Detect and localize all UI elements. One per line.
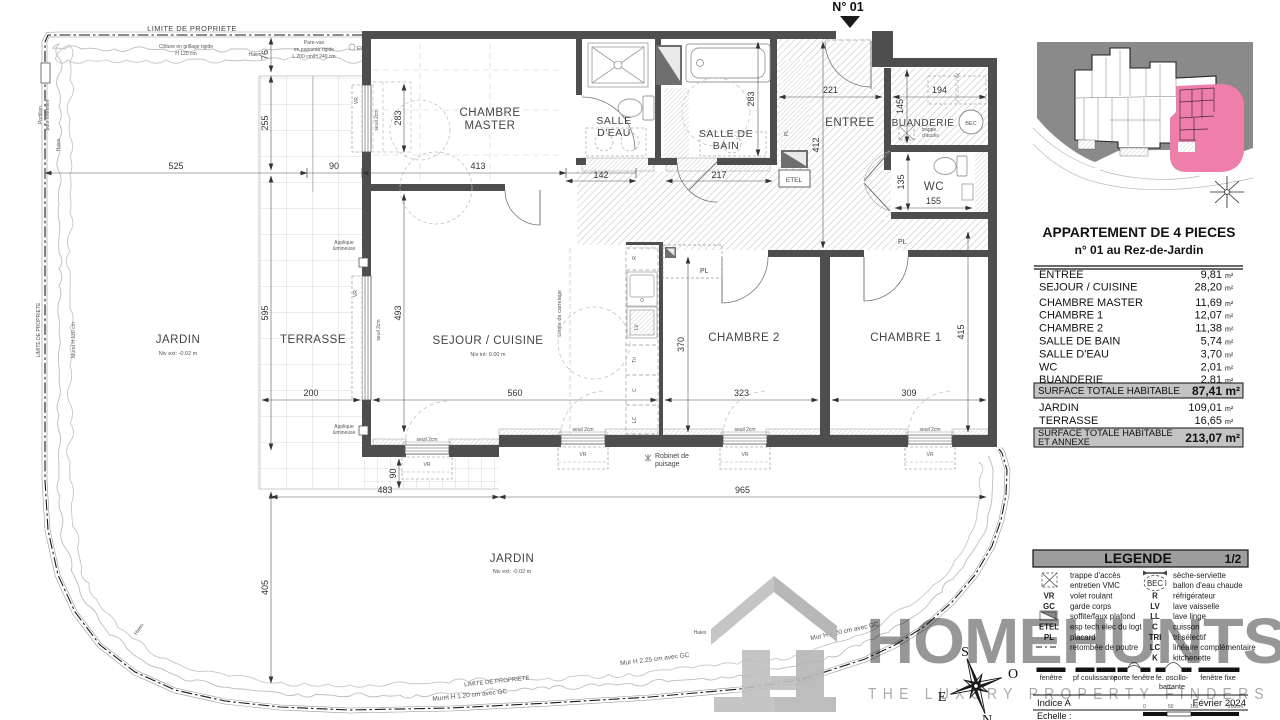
svg-text:VR: VR: [1044, 592, 1055, 601]
svg-text:SALLE D'EAU: SALLE D'EAU: [1039, 348, 1109, 360]
svg-text:595: 595: [260, 305, 270, 320]
svg-text:SURFACE TOTALE HABITABLE: SURFACE TOTALE HABITABLE: [1038, 386, 1180, 397]
svg-text:560: 560: [507, 388, 522, 398]
svg-text:BAIN: BAIN: [713, 140, 740, 152]
svg-text:135: 135: [896, 174, 906, 189]
svg-text:LEGENDE: LEGENDE: [1104, 550, 1172, 566]
svg-text:VR: VR: [354, 97, 360, 104]
svg-text:SEJOUR / CUISINE: SEJOUR / CUISINE: [1039, 282, 1137, 294]
svg-text:VR: VR: [927, 452, 934, 458]
svg-text:CHAMBRE 2: CHAMBRE 2: [708, 332, 780, 344]
svg-text:m²: m²: [1225, 419, 1234, 426]
svg-text:m²: m²: [1225, 314, 1234, 321]
svg-text:Haies: Haies: [694, 630, 707, 636]
svg-text:N° 01: N° 01: [832, 0, 863, 14]
svg-text:LV: LV: [634, 323, 640, 329]
svg-text:Clôture en grillage rigide: Clôture en grillage rigide: [159, 44, 213, 50]
svg-text:ENTREE: ENTREE: [825, 117, 875, 129]
svg-text:Haies: Haies: [249, 52, 262, 58]
svg-text:3,70: 3,70: [1201, 348, 1222, 360]
svg-text:WC: WC: [924, 181, 944, 193]
svg-text:12,07: 12,07: [1194, 310, 1222, 322]
svg-text:405: 405: [260, 580, 270, 595]
svg-text:ENTREE: ENTREE: [1039, 269, 1084, 281]
svg-text:JARDIN: JARDIN: [490, 553, 535, 565]
svg-text:323: 323: [734, 388, 749, 398]
svg-text:volet roulant: volet roulant: [1070, 592, 1113, 601]
svg-text:CHAMBRE: CHAMBRE: [459, 107, 520, 119]
svg-text:CHAMBRE MASTER: CHAMBRE MASTER: [1039, 297, 1143, 309]
svg-text:283: 283: [746, 91, 756, 106]
svg-text:ETEL: ETEL: [786, 177, 803, 184]
svg-text:87,41 m²: 87,41 m²: [1192, 384, 1240, 398]
svg-text:trappe d'accès: trappe d'accès: [1070, 571, 1121, 580]
svg-text:483: 483: [377, 485, 392, 495]
svg-text:200cm: 200cm: [1228, 704, 1243, 710]
svg-text:lumineuse: lumineuse: [333, 246, 356, 252]
svg-text:255: 255: [260, 115, 270, 130]
svg-text:JARDIN: JARDIN: [1039, 402, 1079, 414]
svg-text:Niv int: 0.00 m: Niv int: 0.00 m: [470, 352, 506, 358]
svg-text:TERRASSE: TERRASSE: [1039, 415, 1098, 427]
svg-text:APPARTEMENT DE 4 PIECES: APPARTEMENT DE 4 PIECES: [1043, 225, 1236, 240]
svg-text:413: 413: [470, 161, 485, 171]
svg-text:0: 0: [1143, 704, 1146, 710]
svg-text:WC: WC: [1039, 361, 1057, 373]
svg-text:N: N: [982, 713, 992, 720]
svg-text:en panneau rigide: en panneau rigide: [294, 47, 334, 53]
svg-text:5,74: 5,74: [1201, 336, 1222, 348]
svg-text:213,07 m²: 213,07 m²: [1185, 431, 1240, 445]
svg-text:m²: m²: [1225, 365, 1234, 372]
svg-text:seuil 2cm: seuil 2cm: [376, 319, 382, 340]
svg-text:CHAMBRE 1: CHAMBRE 1: [870, 332, 942, 344]
svg-text:LIMITE DE PROPRIETE: LIMITE DE PROPRIETE: [147, 24, 237, 33]
svg-text:CHAMBRE 1: CHAMBRE 1: [1039, 310, 1103, 322]
svg-text:Limite de carrelage: Limite de carrelage: [557, 290, 563, 337]
svg-text:SALLE: SALLE: [596, 115, 631, 127]
svg-text:221: 221: [823, 85, 838, 95]
svg-text:200: 200: [303, 388, 318, 398]
svg-text:Portillon: Portillon: [38, 106, 44, 124]
svg-text:90: 90: [388, 468, 398, 478]
svg-text:JARDIN: JARDIN: [156, 334, 201, 346]
svg-text:m²: m²: [1225, 301, 1234, 308]
svg-text:194: 194: [932, 85, 947, 95]
svg-text:m²: m²: [1225, 273, 1234, 280]
svg-text:L 200 cm/H 240 cm: L 200 cm/H 240 cm: [292, 54, 335, 60]
svg-text:Echelle :: Echelle :: [1037, 711, 1072, 720]
svg-text:R: R: [1152, 592, 1158, 601]
svg-text:m²: m²: [1225, 286, 1234, 293]
svg-text:R: R: [632, 256, 638, 260]
svg-text:m²: m²: [1225, 340, 1234, 347]
svg-text:2,01: 2,01: [1201, 361, 1222, 373]
svg-text:415: 415: [956, 324, 966, 339]
svg-text:LIMITE DE PROPRIETE: LIMITE DE PROPRIETE: [36, 302, 42, 357]
svg-text:VR: VR: [424, 462, 431, 468]
svg-text:lumineuse: lumineuse: [333, 430, 356, 436]
svg-text:965: 965: [735, 485, 750, 495]
svg-text:VR: VR: [580, 452, 587, 458]
svg-text:145: 145: [895, 99, 905, 114]
svg-text:Robinet de: Robinet de: [655, 453, 689, 460]
svg-text:100: 100: [1190, 704, 1199, 710]
svg-text:50: 50: [1168, 704, 1174, 710]
svg-text:Pare-vue: Pare-vue: [304, 40, 325, 46]
svg-text:11,69: 11,69: [1195, 297, 1222, 309]
svg-text:EP: EP: [357, 46, 364, 52]
svg-text:n° 01 au Rez-de-Jardin: n° 01 au Rez-de-Jardin: [1075, 243, 1204, 257]
svg-text:pour entretien: pour entretien: [45, 99, 51, 130]
svg-text:BUANDERIE: BUANDERIE: [892, 118, 955, 129]
svg-text:PL: PL: [898, 239, 907, 246]
svg-text:S: S: [961, 645, 969, 660]
svg-text:Muret H 120 cm: Muret H 120 cm: [71, 322, 77, 358]
svg-text:1/2: 1/2: [1225, 552, 1242, 566]
svg-text:Niv ext: -0.02 m: Niv ext: -0.02 m: [159, 351, 198, 357]
svg-text:d'accès: d'accès: [922, 133, 939, 139]
svg-text:142: 142: [593, 170, 608, 180]
svg-text:11,38: 11,38: [1195, 323, 1222, 335]
svg-text:THE LUXURY PROPERTY FINDERS: THE LUXURY PROPERTY FINDERS: [868, 686, 1270, 703]
svg-text:76: 76: [260, 50, 270, 60]
svg-text:m²: m²: [1225, 406, 1234, 413]
svg-text:525: 525: [168, 161, 183, 171]
svg-text:MASTER: MASTER: [465, 120, 516, 132]
svg-text:109,01: 109,01: [1188, 402, 1222, 414]
svg-text:D'EAU: D'EAU: [597, 127, 631, 139]
svg-text:m²: m²: [1225, 352, 1234, 359]
svg-text:9,81: 9,81: [1201, 269, 1222, 281]
svg-text:155: 155: [926, 196, 941, 206]
svg-text:ballon d'eau chaude: ballon d'eau chaude: [1173, 581, 1243, 590]
svg-text:Haies: Haies: [56, 138, 62, 151]
svg-text:16,65: 16,65: [1194, 415, 1222, 427]
svg-text:493: 493: [393, 305, 403, 320]
svg-text:Niv ext: -0.02 m: Niv ext: -0.02 m: [493, 569, 532, 575]
svg-text:370: 370: [676, 337, 686, 352]
svg-text:H 120 cm: H 120 cm: [175, 51, 196, 57]
svg-text:CHAMBRE 2: CHAMBRE 2: [1039, 323, 1103, 335]
svg-text:BEC: BEC: [1147, 579, 1163, 588]
svg-text:VR: VR: [742, 452, 749, 458]
svg-text:Tri: Tri: [632, 357, 638, 363]
svg-text:O: O: [1008, 667, 1018, 682]
svg-text:réfrigérateur: réfrigérateur: [1173, 592, 1216, 601]
svg-text:VR: VR: [353, 290, 359, 297]
svg-text:C: C: [632, 388, 638, 392]
svg-text:ET ANNEXE: ET ANNEXE: [1038, 437, 1090, 447]
svg-text:SALLE DE BAIN: SALLE DE BAIN: [1039, 336, 1120, 348]
svg-text:283: 283: [393, 110, 403, 125]
svg-text:m²: m²: [1225, 327, 1234, 334]
svg-text:309: 309: [901, 388, 916, 398]
svg-text:217: 217: [711, 170, 726, 180]
svg-text:28,20: 28,20: [1194, 282, 1222, 294]
svg-text:E: E: [938, 690, 947, 705]
svg-text:TERRASSE: TERRASSE: [280, 334, 346, 346]
svg-text:SALLE DE: SALLE DE: [699, 128, 753, 140]
svg-text:BEC: BEC: [965, 121, 976, 127]
svg-text:HOMEHUNTS: HOMEHUNTS: [866, 605, 1280, 677]
svg-text:LC: LC: [632, 416, 638, 423]
svg-text:SEJOUR / CUISINE: SEJOUR / CUISINE: [433, 335, 544, 347]
svg-text:seuil 2cm: seuil 2cm: [374, 109, 380, 130]
svg-text:90: 90: [329, 161, 339, 171]
svg-text:PL: PL: [700, 268, 709, 275]
svg-text:PL: PL: [784, 130, 790, 136]
svg-text:entretien VMC: entretien VMC: [1070, 581, 1120, 590]
svg-text:sèche-serviette: sèche-serviette: [1173, 571, 1226, 580]
svg-text:412: 412: [811, 137, 821, 152]
svg-text:puisage: puisage: [655, 461, 680, 468]
